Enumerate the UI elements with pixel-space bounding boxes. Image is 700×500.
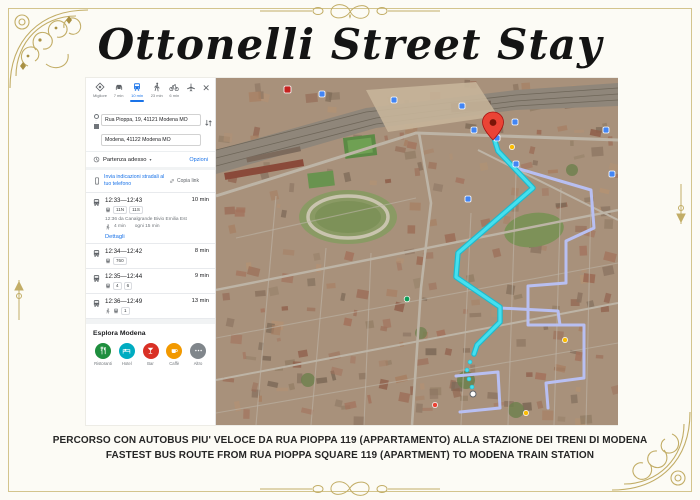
route-details-link[interactable]: Dettagli [105, 234, 209, 240]
mode-bike-button[interactable]: 6 min [169, 82, 179, 98]
travel-mode-bar: Migliore 7 min 10 min 23 min 6 min [86, 78, 215, 106]
map-canvas[interactable] [216, 78, 617, 425]
route-duration: 8 min [195, 248, 209, 254]
route-duration: 9 min [195, 273, 209, 279]
plane-icon [186, 82, 196, 92]
route-duration: 13 min [192, 298, 209, 304]
close-directions-button[interactable]: ✕ [202, 82, 210, 93]
bus-icon [105, 258, 111, 264]
mode-walk-button[interactable]: 23 min [151, 82, 163, 98]
link-icon [169, 178, 175, 184]
walk-icon [105, 224, 111, 230]
chevron-down-icon: ▾ [150, 157, 152, 162]
right-edge-ornament [674, 180, 688, 224]
transit-badge-icon [92, 198, 101, 207]
destination-dot-icon [94, 124, 99, 129]
bus-line-chip: 4 [113, 282, 122, 290]
options-button[interactable]: Opzioni [189, 157, 208, 163]
destination-input[interactable] [101, 134, 201, 146]
swap-waypoints-icon[interactable] [204, 118, 213, 128]
coffee-icon [170, 346, 179, 355]
bottom-center-ornament [260, 479, 440, 499]
route-time: 12:36—12:49 [105, 298, 142, 305]
page-title: Ottonelli Street Stay [0, 20, 700, 69]
cocktail-icon [146, 346, 155, 355]
explore-coffee-button[interactable]: Caffè [164, 343, 184, 366]
route-option-3[interactable]: 12:35—12:44 9 min 4 6 [86, 268, 215, 293]
walk-icon [152, 82, 162, 92]
restaurant-icon [99, 346, 108, 355]
explore-bars-button[interactable]: Bar [141, 343, 161, 366]
caption-line-english: FASTEST BUS ROUTE FROM RUA PIOPPA SQUARE… [0, 448, 700, 463]
route-time: 12:34—12:42 [105, 248, 142, 255]
top-center-ornament [260, 1, 440, 21]
caption-line-italian: PERCORSO CON AUTOBUS PIU' VELOCE DA RUA … [0, 433, 700, 448]
hotel-icon [122, 346, 131, 355]
phone-icon [93, 177, 101, 185]
left-edge-ornament [12, 280, 26, 324]
mode-flight-button[interactable] [186, 82, 196, 92]
route-time: 12:35—12:44 [105, 273, 142, 280]
caption: PERCORSO CON AUTOBUS PIU' VELOCE DA RUA … [0, 433, 700, 463]
bike-icon [169, 82, 179, 92]
walk-icon [105, 308, 111, 314]
directions-panel: Migliore 7 min 10 min 23 min 6 min [86, 78, 216, 425]
origin-input[interactable] [101, 114, 201, 126]
departure-row: Partenza adesso ▾ Opzioni [86, 151, 215, 167]
route-time: 12:33—12:43 [105, 197, 142, 204]
copy-link-button[interactable]: Copia link [169, 178, 199, 184]
bus-line-chip: 11N [113, 206, 127, 214]
route-option-1[interactable]: 12:33—12:43 10 min 11N 11S 12:36 da Cana… [86, 192, 215, 243]
mode-transit-button[interactable]: 10 min [130, 82, 144, 102]
departure-time-select[interactable]: Partenza adesso [103, 157, 147, 163]
transit-badge-icon [92, 249, 101, 258]
mode-drive-button[interactable]: 7 min [114, 82, 124, 98]
best-route-icon [95, 82, 105, 92]
clock-icon [93, 156, 100, 163]
bus-icon [132, 82, 142, 92]
waypoint-fields: ⋮ [86, 106, 215, 151]
promo-card: { "frame": { "title": "Ottonelli Street … [0, 0, 700, 500]
bus-line-chip: 6 [124, 282, 133, 290]
explore-section: Esplora Modena Ristoranti Hotel Bar [86, 324, 215, 372]
transit-badge-icon [92, 299, 101, 308]
bus-icon [105, 207, 111, 213]
explore-more-button[interactable]: Altro [188, 343, 208, 366]
mode-best-button[interactable]: Migliore [93, 82, 107, 98]
maps-screenshot: Migliore 7 min 10 min 23 min 6 min [86, 78, 617, 425]
route-departure-info: 12:36 da Canalgrande Bivio Emilia Est [105, 217, 209, 222]
more-icon [194, 346, 203, 355]
bus-line-chip: 760 [113, 257, 127, 265]
explore-restaurants-button[interactable]: Ristoranti [93, 343, 113, 366]
bus-line-chip: 1 [121, 307, 130, 315]
explore-hotels-button[interactable]: Hotel [117, 343, 137, 366]
explore-title: Esplora Modena [93, 330, 208, 337]
route-option-2[interactable]: 12:34—12:42 8 min 760 [86, 243, 215, 268]
satellite-map [216, 78, 618, 425]
transit-badge-icon [92, 274, 101, 283]
route-duration: 10 min [192, 197, 209, 203]
bus-icon [105, 283, 111, 289]
bus-icon [113, 308, 119, 314]
car-icon [114, 82, 124, 92]
send-to-phone-row: Invia indicazioni stradali al tuo telefo… [86, 167, 215, 192]
send-directions-link[interactable]: Invia indicazioni stradali al tuo telefo… [104, 174, 166, 188]
bus-line-chip: 11S [129, 206, 143, 214]
route-option-4[interactable]: 12:36—12:49 13 min 1 [86, 293, 215, 318]
